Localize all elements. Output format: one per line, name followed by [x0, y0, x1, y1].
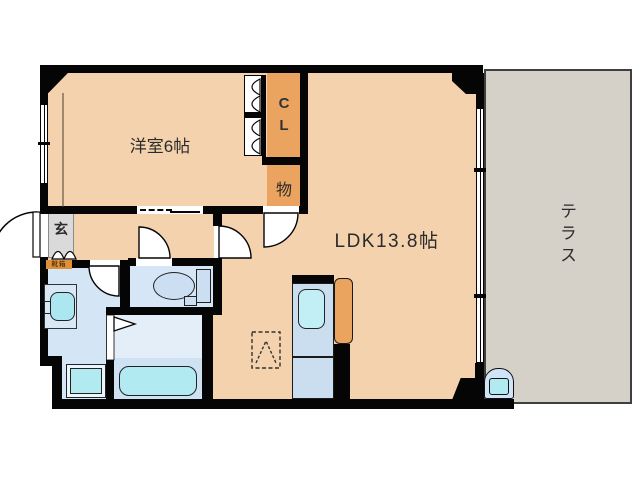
wall-hall-stub — [213, 206, 222, 226]
kitchen-back-counter — [334, 278, 353, 344]
toilet-tank — [196, 269, 211, 303]
closet-door-divider-tick — [244, 112, 262, 118]
doorway-hall-ldk — [214, 226, 222, 258]
wall-bath-left — [106, 360, 114, 399]
wall-toilet-right — [213, 258, 222, 315]
wall-hall-toilet-b — [172, 258, 213, 266]
wall-toilet-bottom — [106, 307, 213, 315]
floorplan-canvas: 洋室6帖 LDK13.8帖 C L 物 玄 靴箱 テラス — [0, 0, 640, 480]
entrance-door-leaf — [33, 212, 40, 257]
wall-top — [42, 65, 483, 73]
wall-kitchen-stub — [334, 344, 350, 399]
wall-room-divider — [300, 73, 308, 206]
wall-closet-left — [262, 75, 266, 157]
wall-kitchen-top — [292, 275, 334, 283]
washbasin-faucet — [44, 301, 51, 314]
bathtub — [119, 366, 197, 396]
wall-bottom — [52, 399, 514, 409]
window-terrace-mullion-1 — [474, 168, 486, 172]
wall-bath-right — [202, 315, 213, 399]
outdoor-faucet — [484, 368, 514, 399]
window-terrace-mullion-2 — [474, 294, 486, 298]
toilet-seat-box — [184, 296, 197, 306]
doorway-washroom — [90, 260, 120, 268]
washing-machine-pan — [66, 364, 106, 398]
window-terrace — [476, 108, 484, 363]
sliding-door-western-room — [137, 206, 203, 214]
kitchen-sink — [298, 289, 325, 329]
ldk-label: LDK13.8帖 — [312, 226, 462, 253]
entrance-label: 玄 — [48, 219, 74, 239]
kitchen-counter-divider — [293, 356, 333, 358]
western-room-label: 洋室6帖 — [105, 132, 215, 157]
wall-left-1 — [40, 65, 48, 105]
shoe-cabinet-label: 靴箱 — [46, 260, 72, 269]
closet-label: C L — [275, 93, 293, 137]
wall-right-upper — [476, 73, 484, 108]
washbasin-bowl — [50, 292, 75, 321]
doorway-toilet — [136, 258, 172, 266]
western-room-wall-line — [62, 93, 64, 207]
doorway-storage — [263, 206, 299, 214]
window-west-tick — [38, 142, 50, 145]
storage-label: 物 — [272, 176, 296, 200]
bathroom-floor-upper — [114, 315, 202, 360]
terrace-label: テラス — [554, 202, 579, 297]
entrance-door-arc — [0, 212, 37, 257]
